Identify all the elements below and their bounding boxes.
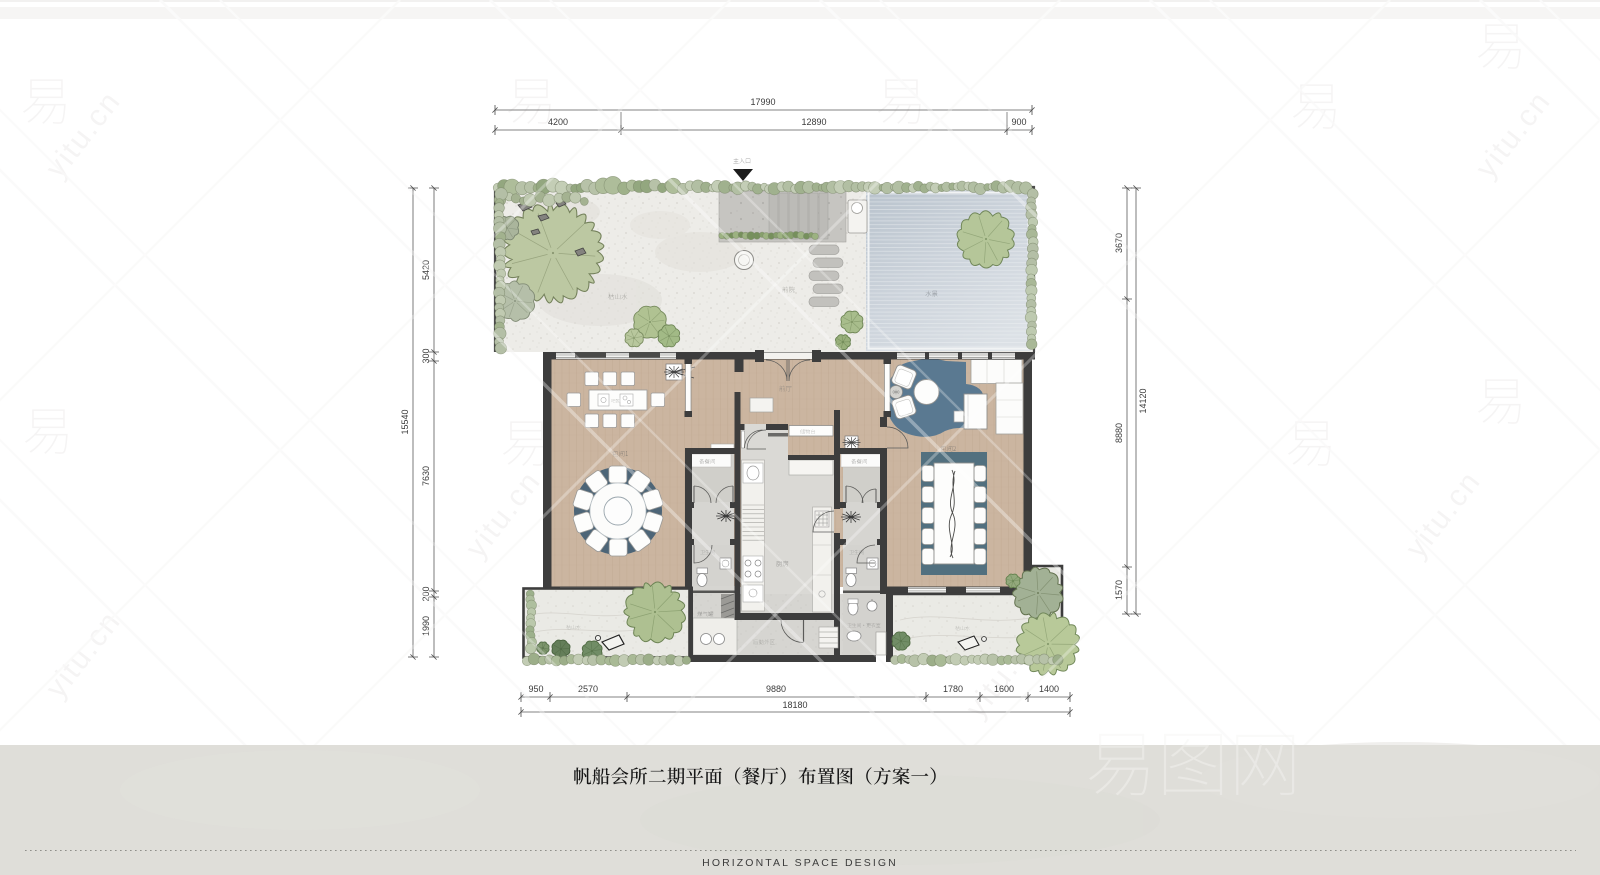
- svg-text:12890: 12890: [801, 117, 826, 127]
- svg-text:900: 900: [1011, 117, 1026, 127]
- svg-text:15540: 15540: [400, 409, 410, 434]
- svg-text:HORIZONTAL SPACE DESIGN: HORIZONTAL SPACE DESIGN: [702, 857, 898, 869]
- svg-text:1400: 1400: [1039, 684, 1059, 694]
- svg-text:1600: 1600: [994, 684, 1014, 694]
- svg-text:8880: 8880: [1114, 423, 1124, 443]
- svg-text:18180: 18180: [782, 700, 807, 710]
- svg-text:17990: 17990: [750, 97, 775, 107]
- svg-text:300: 300: [421, 348, 431, 363]
- svg-text:4200: 4200: [548, 117, 568, 127]
- svg-text:1780: 1780: [943, 684, 963, 694]
- svg-text:950: 950: [528, 684, 543, 694]
- svg-text:9880: 9880: [766, 684, 786, 694]
- svg-text:7630: 7630: [421, 466, 431, 486]
- svg-text:14120: 14120: [1138, 388, 1148, 413]
